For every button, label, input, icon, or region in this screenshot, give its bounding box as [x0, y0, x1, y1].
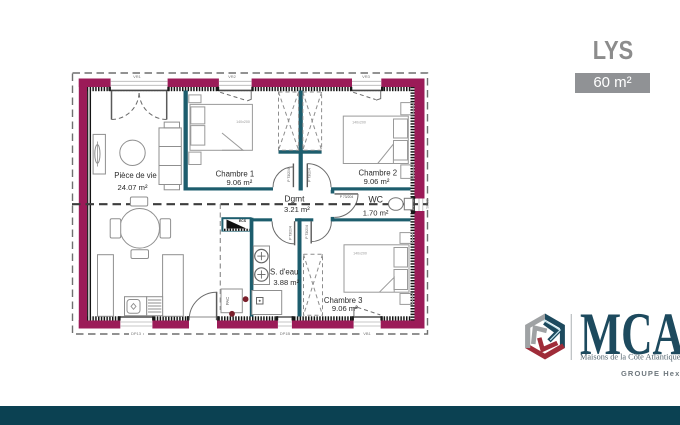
- svg-text:SF93: SF93: [425, 198, 430, 208]
- svg-text:P 73/204: P 73/204: [340, 195, 354, 199]
- svg-text:Pièce de vie: Pièce de vie: [114, 171, 156, 180]
- svg-text:VR1: VR1: [133, 74, 142, 79]
- svg-text:9.06 m²: 9.06 m²: [364, 177, 390, 186]
- svg-text:9.06 m²: 9.06 m²: [227, 178, 253, 187]
- svg-text:Chambre 1: Chambre 1: [216, 169, 255, 178]
- svg-text:S. d'eau: S. d'eau: [270, 267, 298, 276]
- svg-text:140x200: 140x200: [236, 120, 250, 124]
- svg-text:PAC: PAC: [225, 297, 230, 305]
- svg-text:VB1: VB1: [363, 331, 371, 336]
- svg-text:GROUPE Hexaōm: GROUPE Hexaōm: [621, 369, 680, 378]
- svg-text:VR2: VR2: [228, 74, 237, 79]
- svg-text:DP13: DP13: [131, 331, 142, 336]
- svg-text:P 73/204: P 73/204: [288, 226, 292, 240]
- svg-text:WC: WC: [368, 195, 383, 205]
- svg-text:1.70 m²: 1.70 m²: [363, 209, 389, 218]
- svg-text:140x200: 140x200: [352, 121, 366, 125]
- svg-text:P 73/204: P 73/204: [305, 225, 309, 239]
- svg-text:Maisons de la Côte Atlantique: Maisons de la Côte Atlantique: [580, 353, 680, 362]
- svg-text:DP1B: DP1B: [280, 331, 291, 336]
- svg-text:9.06 m²: 9.06 m²: [332, 304, 358, 313]
- svg-text:3.88 m²: 3.88 m²: [273, 278, 299, 287]
- svg-text:P 73/204: P 73/204: [308, 168, 312, 182]
- svg-text:24.07 m²: 24.07 m²: [118, 183, 148, 192]
- svg-text:P 73/204: P 73/204: [287, 168, 291, 182]
- svg-text:140x200: 140x200: [353, 252, 367, 256]
- svg-text:ECS: ECS: [239, 219, 247, 223]
- svg-text:3.21 m²: 3.21 m²: [284, 205, 310, 214]
- svg-text:VR3: VR3: [362, 74, 371, 79]
- svg-text:Dgmt: Dgmt: [284, 193, 305, 203]
